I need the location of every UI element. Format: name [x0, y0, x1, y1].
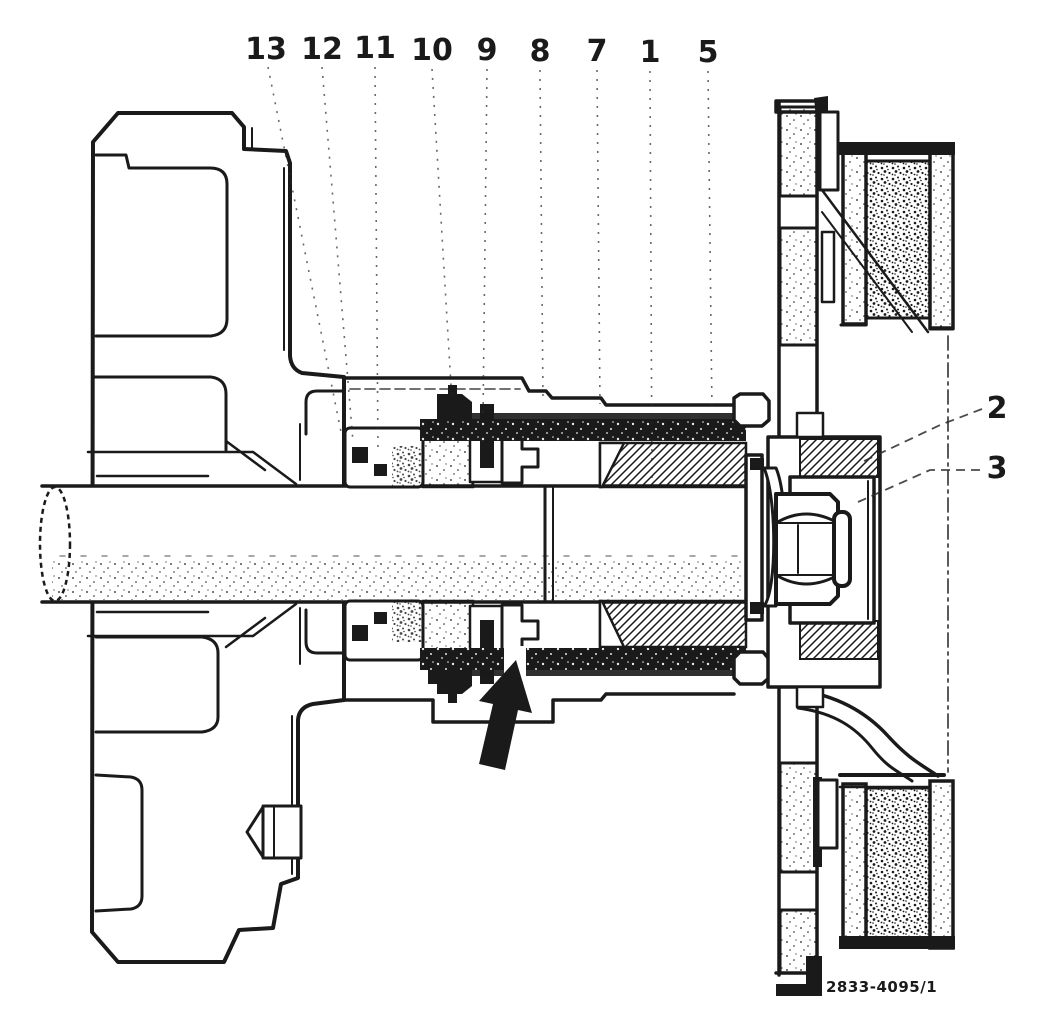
- pump-section-diagram: 13 12 11 10 9 8 7 1 5 2 3 2833-4095/1: [0, 0, 1056, 1033]
- hex-nut: [776, 494, 838, 604]
- leader-line-11: [375, 67, 378, 450]
- callout-2: 2: [987, 391, 1008, 426]
- leader-line-9: [483, 69, 487, 416]
- callout-11: 11: [354, 31, 396, 66]
- callout-13: 13: [245, 32, 287, 67]
- stud-band-bottom: [420, 646, 769, 684]
- leader-line-10: [432, 69, 452, 402]
- callout-10: 10: [411, 33, 453, 68]
- callout-8: 8: [530, 34, 551, 69]
- shaft-washer: [746, 455, 764, 620]
- pump-shaft: [40, 486, 748, 602]
- v-belt-pulley-top: [839, 142, 955, 329]
- leader-line-8: [540, 70, 543, 398]
- callout-1: 1: [640, 35, 661, 70]
- diagram-page: 13 12 11 10 9 8 7 1 5 2 3 2833-4095/1: [0, 0, 1056, 1033]
- reference-code: 2833-4095/1: [826, 978, 937, 996]
- callout-12: 12: [301, 32, 343, 67]
- v-belt-pulley-bottom: [839, 775, 955, 949]
- leader-line-5: [708, 71, 712, 412]
- callout-5: 5: [698, 35, 719, 70]
- leader-line-7: [597, 70, 600, 404]
- stud-band-top: [420, 394, 769, 441]
- bolt-end: [834, 512, 850, 586]
- callout-7: 7: [587, 34, 608, 69]
- callout-3: 3: [987, 451, 1008, 486]
- callout-9: 9: [477, 33, 498, 68]
